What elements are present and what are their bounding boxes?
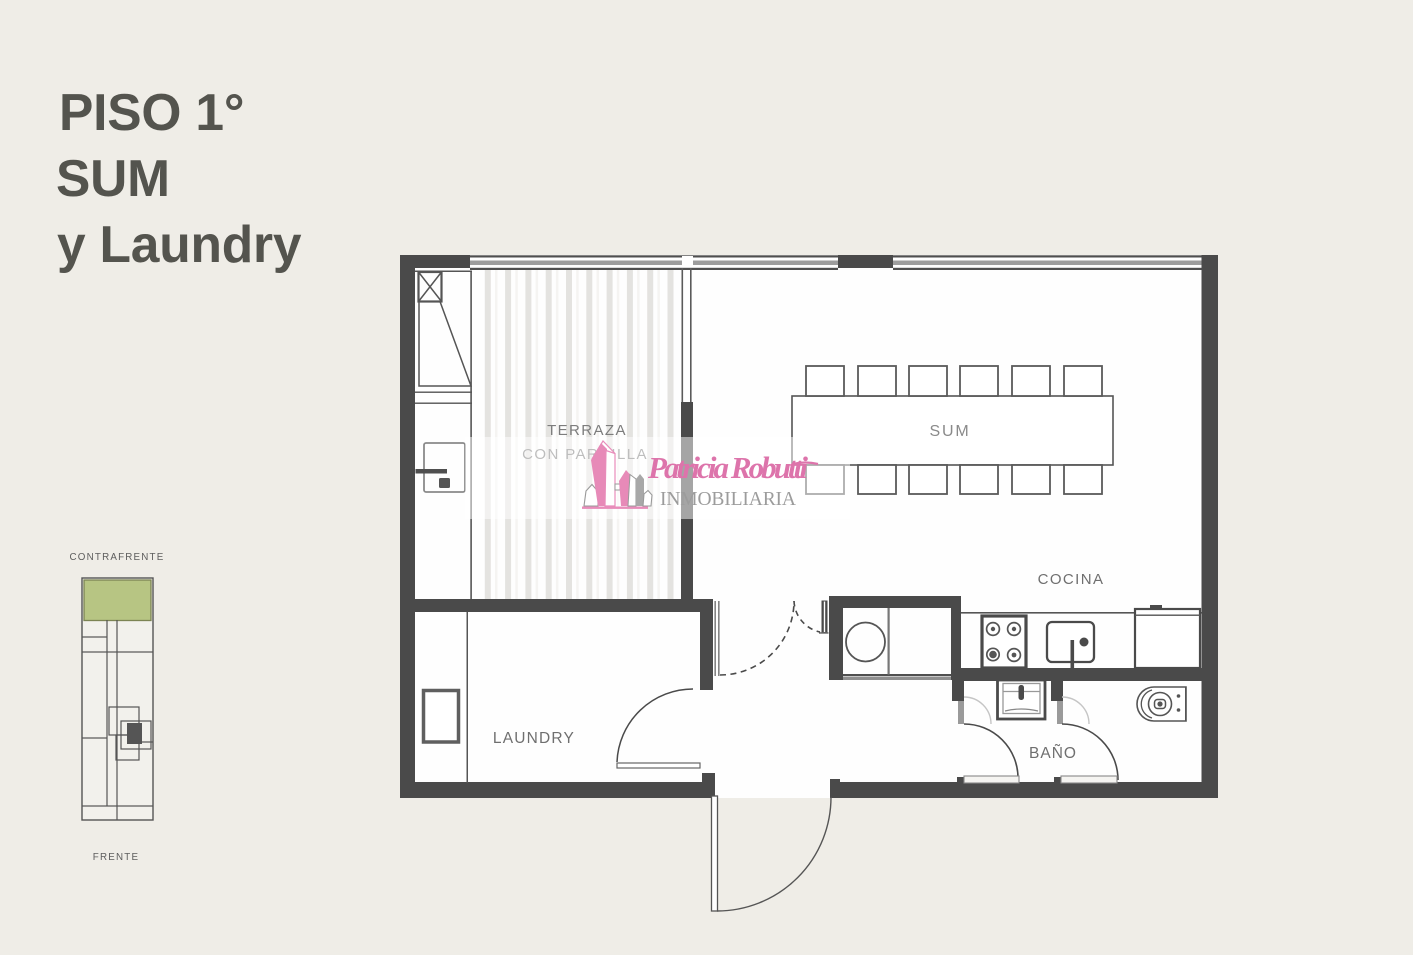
svg-text:SUM: SUM xyxy=(56,149,170,207)
svg-text:LAUNDRY: LAUNDRY xyxy=(493,730,575,747)
svg-text:y Laundry: y Laundry xyxy=(57,215,302,273)
svg-text:FRENTE: FRENTE xyxy=(93,852,139,863)
svg-text:INMOBILIARIA: INMOBILIARIA xyxy=(660,489,796,510)
svg-text:CONTRAFRENTE: CONTRAFRENTE xyxy=(70,552,165,563)
svg-text:COCINA: COCINA xyxy=(1038,571,1105,588)
svg-text:TERRAZA: TERRAZA xyxy=(547,422,627,439)
svg-text:Patricia Robutti: Patricia Robutti xyxy=(647,450,808,485)
svg-text:PISO 1°: PISO 1° xyxy=(59,83,244,141)
svg-text:BAÑO: BAÑO xyxy=(1029,745,1077,762)
svg-text:SUM: SUM xyxy=(930,423,971,440)
